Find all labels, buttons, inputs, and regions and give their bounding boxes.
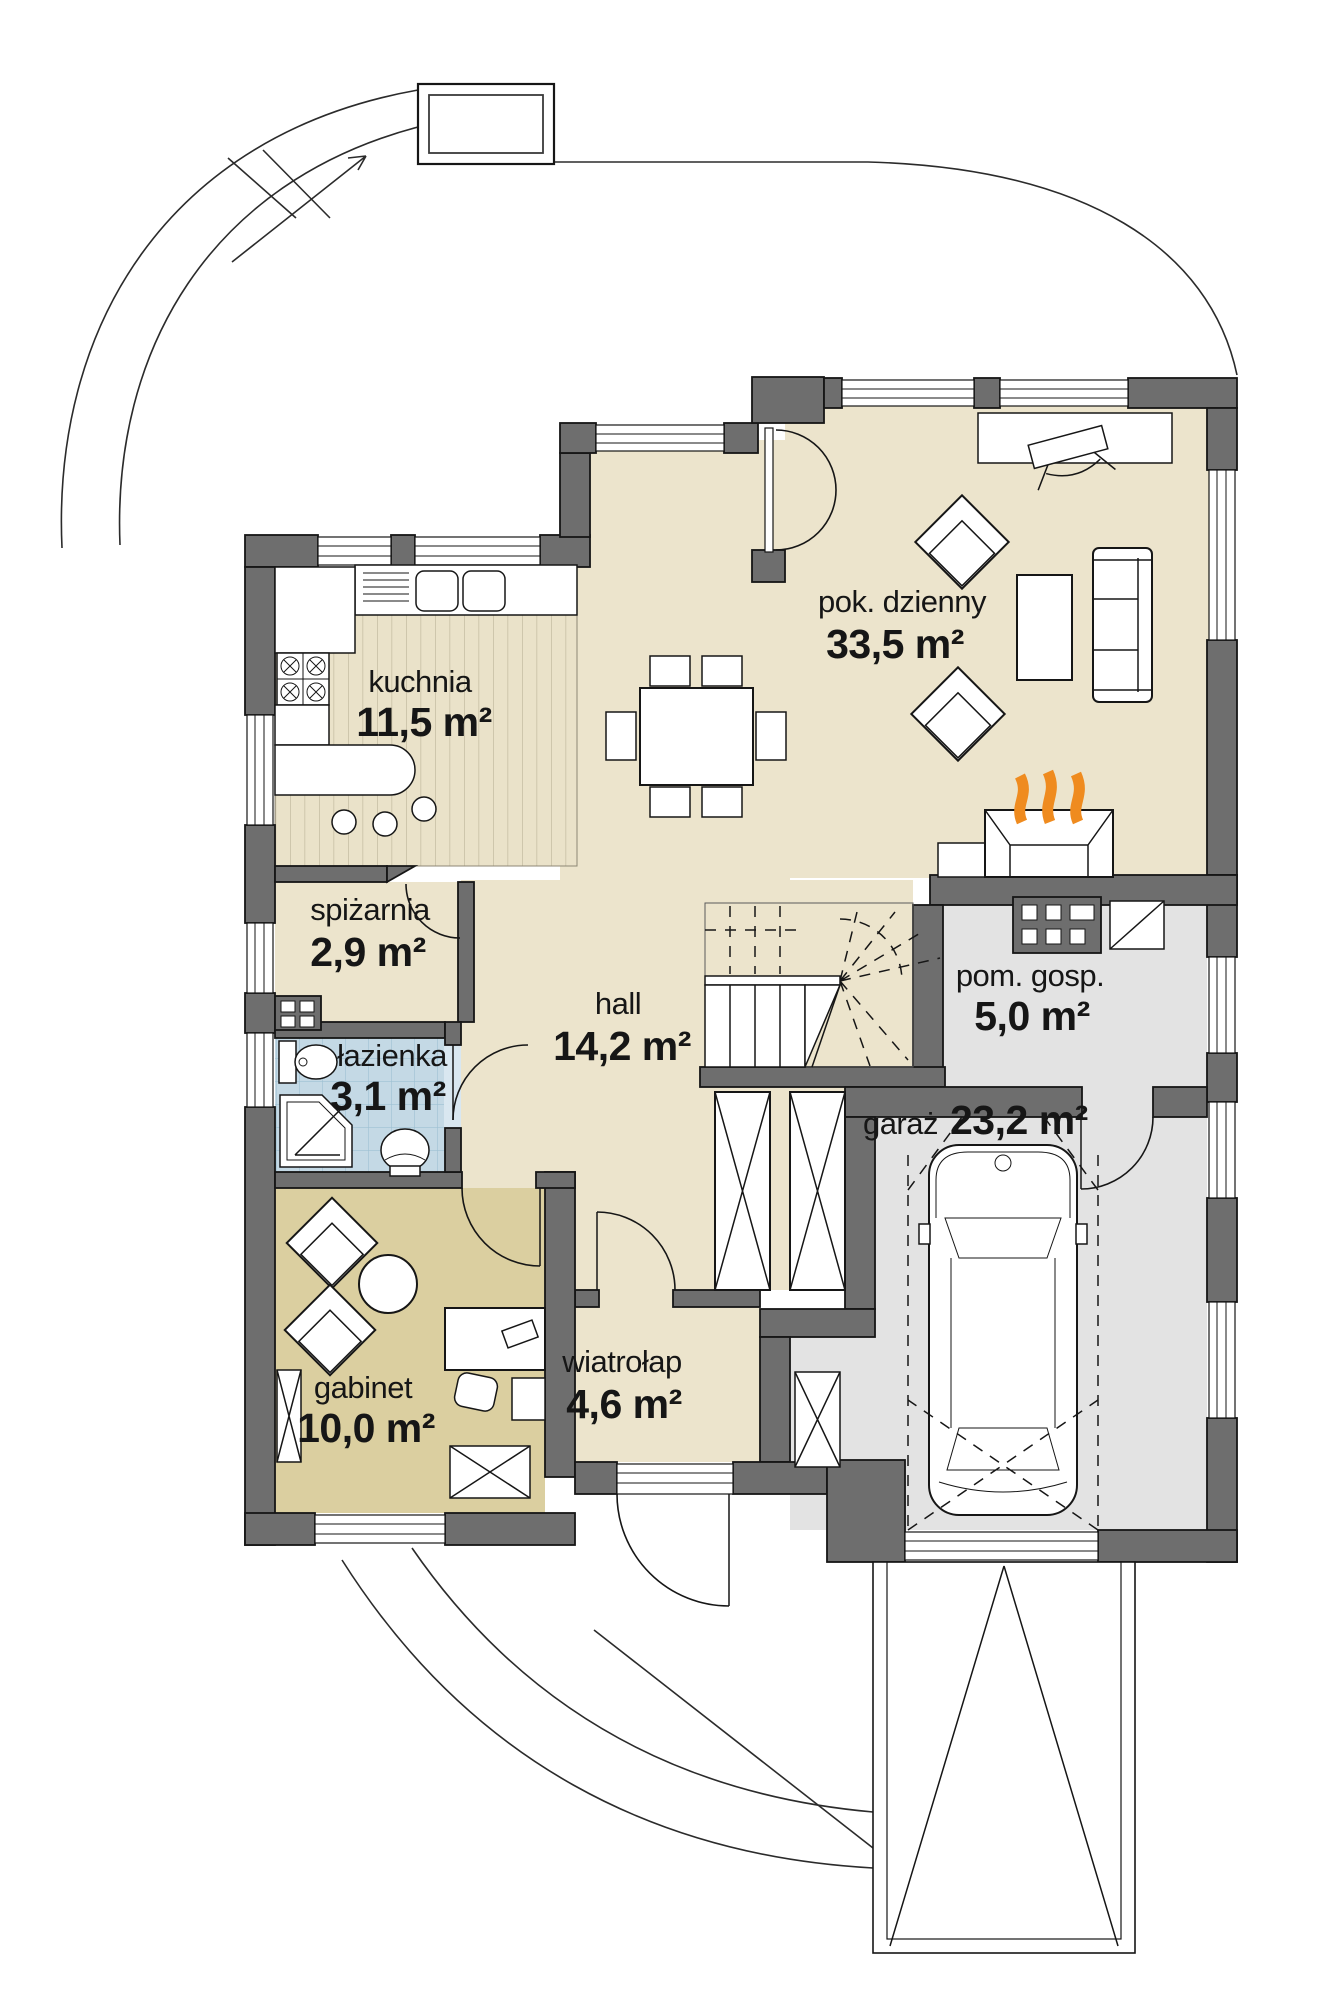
washer-icon [275,996,321,1030]
stove-icon [277,653,329,705]
room-label-office-area: 10,0 m² [297,1405,435,1451]
kitchen-cabinet [275,705,329,745]
room-label-garage-name: garaż [863,1106,938,1141]
kitchen-window [318,537,540,565]
drawer-unit [512,1378,545,1420]
chair-icon [756,712,786,760]
dining-window [596,425,724,451]
kitchen-peninsula [275,745,415,795]
room-label-living-area: 33,5 m² [826,621,964,667]
room-label-hall-name: hall [595,986,641,1021]
round-table-icon [359,1255,417,1313]
terrace-arc-inner [120,127,418,545]
room-label-bath-name: łazienka [337,1038,448,1073]
boiler-icon [1013,897,1101,953]
room-label-bath-area: 3,1 m² [330,1073,446,1119]
wardrobe-icon [790,1092,845,1290]
stool-icon [412,797,436,821]
room-label-utility-name: pom. gosp. [956,958,1104,993]
kitchen-sink-icon [355,565,577,615]
driveway [873,1562,1135,1953]
chair-icon [650,787,690,817]
entrance-door [617,1464,733,1606]
path-arc-outer [342,1560,873,1868]
floorplan-drawing: pok. dzienny 33,5 m² kuchnia 11,5 m² spi… [0,0,1321,2006]
path-arc-inner [412,1548,873,1812]
roof-edge-right [554,162,1237,375]
room-label-vestibule-name: wiatrołap [561,1344,682,1379]
kitchen-cabinet [275,567,355,653]
stool-icon [332,810,356,834]
floorplan-page: pok. dzienny 33,5 m² kuchnia 11,5 m² spi… [0,0,1321,2006]
wardrobe-icon [715,1092,770,1290]
terrace-cross-ticks [228,150,330,218]
sofa-icon [1093,548,1152,702]
chair-icon [606,712,636,760]
office-window [315,1515,445,1543]
chair-icon [650,656,690,686]
radiator-icon [450,1446,530,1498]
garage-gate [905,1532,1098,1560]
chair-icon [702,656,742,686]
room-label-garage-area: 23,2 m² [950,1097,1088,1143]
coffee-table-icon [1017,575,1072,680]
roof-skylight [418,84,554,164]
chair-icon [702,787,742,817]
room-label-hall-area: 14,2 m² [553,1023,691,1069]
room-label-kitchen-area: 11,5 m² [356,699,492,745]
room-label-office-name: gabinet [314,1370,413,1405]
room-label-vestibule-area: 4,6 m² [566,1381,682,1427]
stool-icon [373,812,397,836]
terrace-arrow [232,156,366,262]
room-label-pantry-name: spiżarnia [310,892,431,927]
car-icon [919,1145,1087,1515]
chimney-icon [1110,901,1164,949]
room-label-pantry-area: 2,9 m² [310,929,426,975]
room-label-kitchen-name: kuchnia [368,664,473,699]
garage-closet wardrobe-icon [795,1372,840,1467]
room-label-living-name: pok. dzienny [818,584,987,619]
office-chair-icon [453,1371,499,1413]
dining-table-icon [640,688,753,785]
room-label-utility-area: 5,0 m² [974,993,1090,1039]
